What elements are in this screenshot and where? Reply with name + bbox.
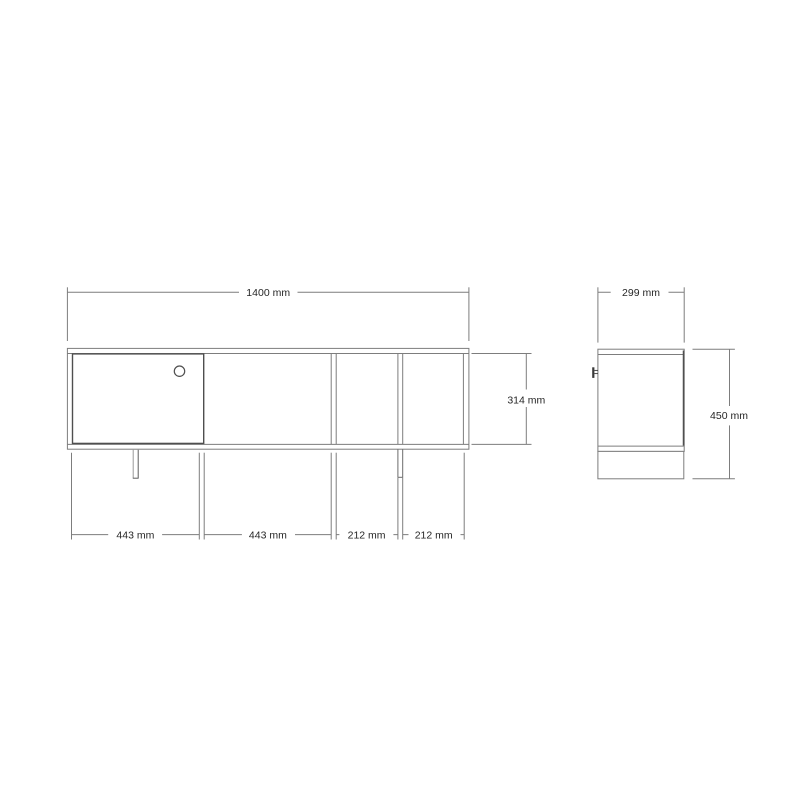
svg-text:1400 mm: 1400 mm [246,287,290,299]
svg-text:443 mm: 443 mm [249,529,287,541]
svg-text:212 mm: 212 mm [415,529,453,541]
svg-text:450 mm: 450 mm [710,410,748,422]
svg-text:212 mm: 212 mm [348,529,386,541]
svg-text:314 mm: 314 mm [507,394,545,406]
svg-text:299 mm: 299 mm [622,287,660,299]
svg-text:443 mm: 443 mm [116,529,154,541]
